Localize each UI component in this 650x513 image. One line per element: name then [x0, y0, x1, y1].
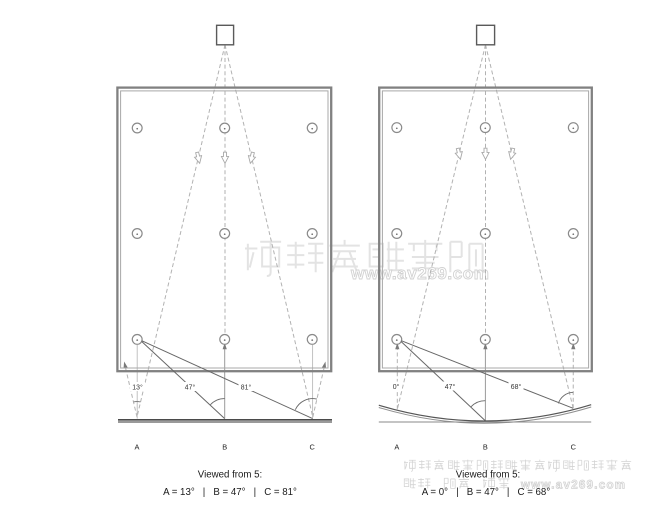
svg-text:13°: 13°	[132, 384, 143, 392]
svg-text:47°: 47°	[445, 383, 456, 391]
svg-text:C: C	[571, 443, 577, 452]
svg-text:68°: 68°	[511, 383, 522, 391]
svg-text:B: B	[222, 443, 227, 452]
svg-text:www.av269.com: www.av269.com	[350, 264, 490, 283]
svg-text:A: A	[394, 443, 399, 452]
svg-text:B: B	[483, 443, 488, 452]
svg-text:A = 13° | B = 47° | C: A = 13° | B = 47° | C = 81°	[163, 487, 297, 498]
svg-text:Viewed from 5:: Viewed from 5:	[198, 469, 262, 480]
svg-text:47°: 47°	[185, 384, 196, 392]
svg-text:A: A	[135, 443, 140, 452]
svg-text:81°: 81°	[241, 384, 252, 392]
svg-text:C: C	[310, 443, 316, 452]
svg-text:A = 0° | B = 47° | C =: A = 0° | B = 47° | C = 68°	[422, 487, 551, 498]
svg-text:Viewed from 5:: Viewed from 5:	[456, 470, 520, 481]
svg-text:0°: 0°	[393, 383, 400, 391]
